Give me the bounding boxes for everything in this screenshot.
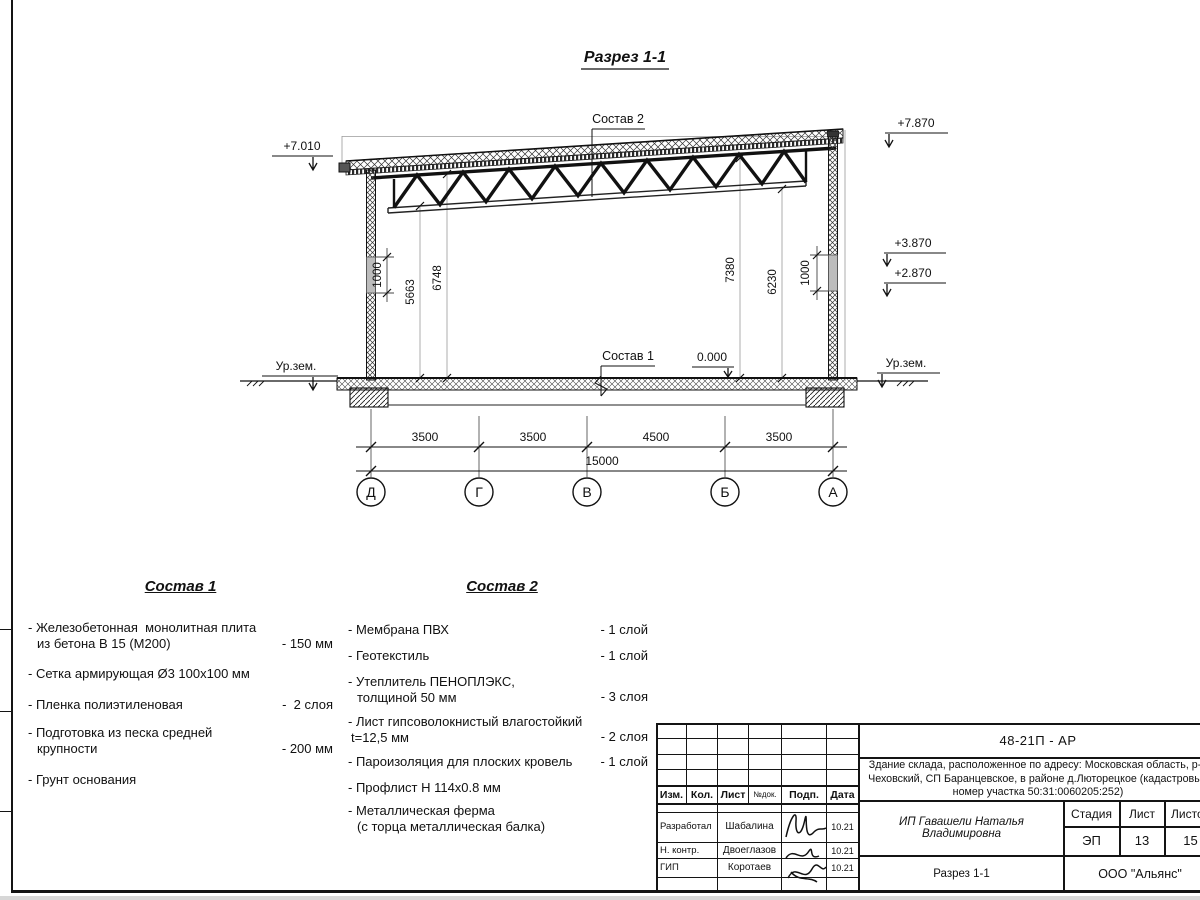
dim-span-vb: 4500 [643, 430, 670, 444]
tb-project-line: Здание склада, расположенное по адресу: … [860, 759, 1200, 773]
dim-parapet-left: 1000 [372, 262, 384, 288]
axis-label-v: В [582, 484, 591, 500]
axis-bubbles [357, 478, 847, 506]
tb-sheet-label: Лист [1120, 801, 1164, 826]
elev-roof-left: +7.010 [283, 139, 320, 153]
elev-ground-left: Ур.зем. [276, 359, 317, 373]
list-item: - Лист гипсоволокнистый влагостойкий t=1… [348, 714, 648, 746]
elev-floor-zero: 0.000 [697, 350, 727, 364]
elev-roof-right: +7.870 [897, 116, 934, 130]
tb-name-developer: Шабалина [718, 813, 781, 841]
callout-roof: Состав 2 [592, 112, 644, 126]
axis-dimensions: 3500 3500 4500 3500 15000 Д Г В Б А [356, 409, 847, 506]
dim-span-gv: 3500 [520, 430, 547, 444]
tb-col-izm: Изм. [657, 786, 686, 803]
tb-date-ncontr: 10.21 [827, 843, 858, 858]
tb-role-gip: ГИП [657, 859, 720, 876]
dim-clear-right: 6230 [767, 269, 779, 295]
fold-mark [0, 629, 11, 630]
item-value: - 1 слой [600, 648, 648, 664]
tb-company: ООО "Альянс" [1064, 856, 1200, 892]
tb-stage-value: ЭП [1064, 827, 1119, 855]
item-text: - Металлическая ферма [348, 803, 648, 819]
tb-sheets-value: 15 [1165, 827, 1200, 855]
tb-date-gip: 10.21 [827, 859, 858, 876]
wall-right-band [829, 255, 838, 291]
foundation-left [350, 388, 388, 407]
item-text: - Железобетонная монолитная плита [28, 620, 333, 636]
list-item: - Сетка армирующая Ø3 100х100 мм [28, 666, 333, 682]
item-value: - 1 слой [600, 754, 648, 770]
tb-sheet-value: 13 [1120, 827, 1164, 855]
list-item: - Пароизоляция для плоских кровель - 1 с… [348, 754, 648, 770]
tb-drawing-name: Разрез 1-1 [860, 856, 1063, 892]
list-item: - Пленка полиэтиленовая - 2 слоя [28, 697, 333, 713]
dim-span-ba: 3500 [766, 430, 793, 444]
item-value: - 200 мм [282, 741, 333, 757]
list-item: - Металлическая ферма (с торца металличе… [348, 803, 648, 835]
axis-label-a: А [828, 484, 838, 500]
item-value: - 2 слоя [601, 729, 648, 745]
signature-ncontr-gip [783, 842, 827, 888]
elev-right-lower: +2.870 [894, 266, 931, 280]
drawing-sheet: Разрез 1-1 [0, 0, 1200, 900]
fold-mark [0, 811, 11, 812]
tb-stage-label: Стадия [1064, 801, 1119, 826]
signature-developer [783, 805, 827, 845]
sostav1-heading: Состав 1 [28, 578, 333, 595]
list-item: - Геотекстиль - 1 слой [348, 648, 648, 664]
tb-date-developer: 10.21 [827, 813, 858, 841]
tb-col-ndok: №док. [749, 786, 781, 803]
parapet-cap [828, 131, 839, 137]
axis-label-d: Д [366, 484, 376, 500]
dim-span-dg: 3500 [412, 430, 439, 444]
tb-col-podp: Подп. [782, 786, 826, 803]
tb-role-developer: Разработал [657, 813, 720, 841]
item-text: - Подготовка из песка средней [28, 725, 333, 741]
item-value: - 150 мм [282, 636, 333, 652]
item-text: (с торца металлическая балка) [348, 819, 648, 835]
tb-project-line: Чеховский, СП Баранцевское, в районе д.Л… [860, 773, 1200, 787]
elev-right-upper: +3.870 [894, 236, 931, 250]
list-item: - Грунт основания [28, 772, 333, 788]
list-item: - Мембрана ПВХ - 1 слой [348, 622, 648, 638]
tb-name-ncontr: Двоеглазов [718, 843, 781, 858]
item-text: - Лист гипсоволокнистый влагостойкий [348, 714, 648, 730]
list-item: - Утеплитель ПЕНОПЛЭКС, толщиной 50 мм -… [348, 674, 648, 706]
tb-project-line: номер участка 50:31:0060205:252) [860, 786, 1200, 800]
tb-col-kol: Кол. [687, 786, 717, 803]
dim-roof-right: 7380 [725, 257, 737, 283]
item-value: - 3 слоя [601, 689, 648, 705]
tb-client: ИП Гавашели Наталья Владимировна [860, 801, 1063, 855]
list-item: - Железобетонная монолитная плита из бет… [28, 620, 333, 652]
tb-sheets-label: Листов [1165, 801, 1200, 826]
tb-col-data: Дата [827, 786, 858, 803]
elev-ground-right: Ур.зем. [886, 356, 927, 370]
axis-label-b: Б [720, 484, 729, 500]
page-edge [0, 896, 1200, 900]
tb-name-gip: Коротаев [718, 859, 781, 876]
foundation-right [806, 388, 844, 407]
tb-project-code: 48-21П - АР [860, 724, 1200, 757]
tb-col-list: Лист [718, 786, 748, 803]
item-value: - 1 слой [600, 622, 648, 638]
item-text: - Профлист Н 114х0.8 мм [348, 780, 648, 796]
drawing-title: Разрез 1-1 [584, 49, 666, 66]
dim-truss-left: 6748 [432, 265, 444, 291]
fold-mark [0, 711, 11, 712]
dim-parapet-right: 1000 [800, 260, 812, 286]
dim-clear-left: 5663 [405, 279, 417, 305]
sostav2-heading: Состав 2 [352, 578, 652, 595]
axis-label-g: Г [475, 484, 483, 500]
list-item: - Профлист Н 114х0.8 мм [348, 780, 648, 796]
roof-edge-plate [339, 163, 350, 172]
dim-total-span: 15000 [585, 454, 619, 468]
truss-bottom-chord [388, 181, 806, 213]
callout-floor: Состав 1 [602, 349, 654, 363]
item-text: - Грунт основания [28, 772, 333, 788]
tb-project-description: Здание склада, расположенное по адресу: … [860, 759, 1200, 800]
parapet-dim-right [810, 246, 828, 300]
tb-role-ncontr: Н. контр. [657, 843, 720, 858]
item-text: - Сетка армирующая Ø3 100х100 мм [28, 666, 333, 682]
list-item: - Подготовка из песка средней крупности … [28, 725, 333, 757]
section-drawing: Разрез 1-1 [0, 0, 1200, 560]
item-value: - 2 слоя [282, 697, 333, 713]
item-text: - Утеплитель ПЕНОПЛЭКС, [348, 674, 648, 690]
floor-and-ground [240, 378, 928, 407]
